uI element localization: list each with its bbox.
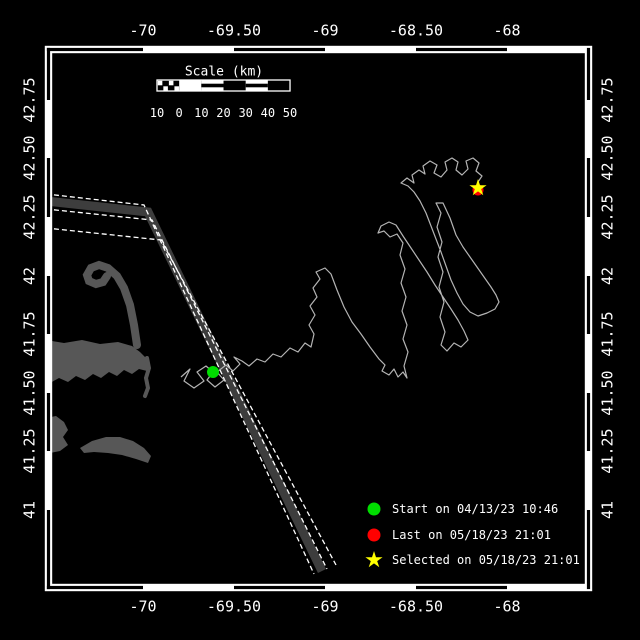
scalebar-checker [163,86,168,91]
map-frame-outer [46,47,592,591]
frame-band-segment [47,393,50,451]
legend-marker-0 [368,503,381,516]
frame-band-segment [47,48,50,100]
shipping-lane-zone [46,201,322,571]
start-position-marker[interactable] [207,366,219,378]
frame-band-segment [234,586,325,589]
frame-band-segment [587,48,590,100]
frame-band-segment [234,48,325,51]
scalebar-segment-stripe [201,84,223,88]
legend-marker-1 [368,529,381,542]
frame-band-segment [587,393,590,451]
frame-band-segment [587,276,590,334]
landmass-arm [87,265,137,345]
frame-band-segment [587,510,590,589]
scalebar-segment [179,80,201,91]
glider-track[interactable] [181,158,499,388]
scalebar-checker [174,86,179,91]
frame-band-segment [47,586,143,589]
scalebar-checker [169,81,174,86]
shipping-lane-boundary [46,209,327,569]
scalebar-segment-stripe [246,84,268,88]
landmass [80,437,151,463]
frame-band-segment [47,158,50,217]
frame-band-segment [416,48,507,51]
shipping-lane-boundary [46,194,314,574]
frame-band-segment [587,158,590,217]
frame-band-segment [47,276,50,334]
scalebar-checker [158,81,163,86]
track-map-viewer: Scale (km) Start on 04/13/23 10:46 Last … [0,0,640,640]
frame-band-segment [416,586,507,589]
frame-band-segment [47,48,143,51]
legend-marker-2 [365,551,382,567]
map-canvas [0,0,640,640]
frame-band-segment [47,510,50,589]
